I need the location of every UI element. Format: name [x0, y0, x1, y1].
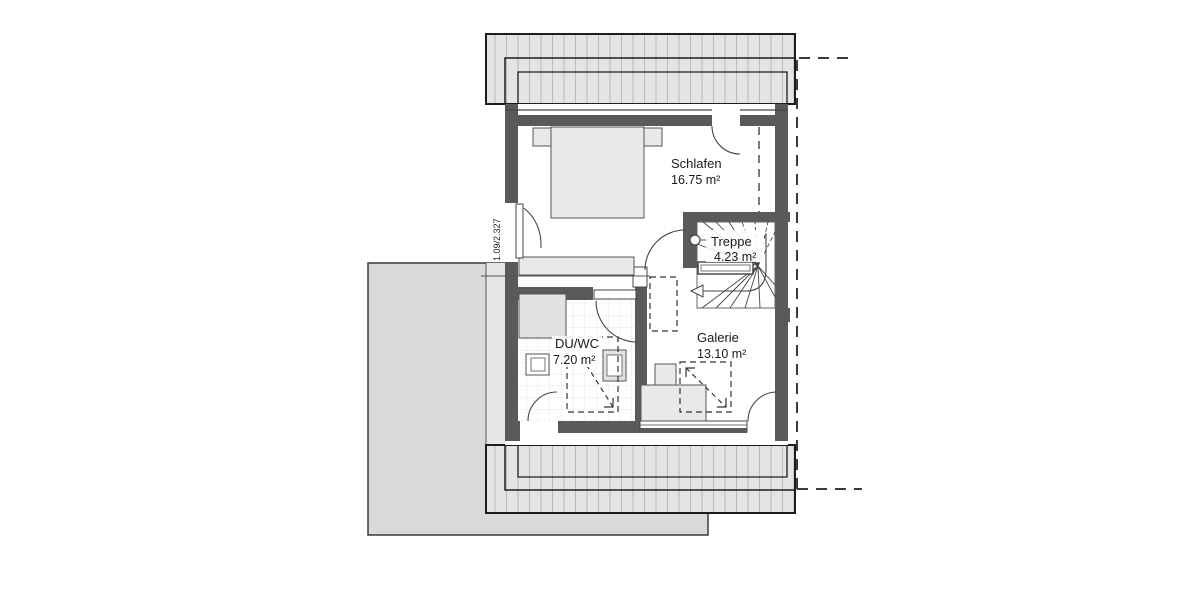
area-label-treppe: 4.23 m²: [714, 250, 756, 264]
sideboard: [519, 257, 634, 275]
window-bottom: [640, 421, 747, 433]
wall-stair-top: [683, 212, 790, 222]
bed: [551, 127, 644, 218]
room-label-duwc: DU/WC: [555, 336, 599, 351]
exterior-wall-bottom-mid: [558, 421, 640, 433]
duwc-door-lintel: [594, 290, 636, 299]
washbasin: [603, 350, 626, 381]
dimension-label: 1.09/2.327: [492, 218, 502, 261]
stair-newel-circle: [690, 235, 700, 245]
area-label-schlafen: 16.75 m²: [671, 173, 720, 187]
shower: [519, 294, 566, 338]
roof-overhang-bottom: [486, 445, 795, 513]
room-label-schlafen: Schlafen: [671, 156, 722, 171]
toilet: [526, 354, 549, 375]
area-label-duwc: 7.20 m²: [553, 353, 595, 367]
window-left-leaf: [516, 204, 523, 258]
floorplan-page: Schlafen 16.75 m² Treppe 4.23 m² DU/WC 7…: [0, 0, 1200, 600]
floorplan-svg: Schlafen 16.75 m² Treppe 4.23 m² DU/WC 7…: [0, 0, 1200, 600]
room-label-galerie: Galerie: [697, 330, 739, 345]
exterior-wall-bottom-corner-left: [505, 421, 520, 441]
nightstand-left: [533, 128, 551, 146]
desk-chair: [655, 364, 676, 385]
nightstand-right: [644, 128, 662, 146]
room-label-treppe: Treppe: [711, 234, 752, 249]
roof-overhang-top: [486, 34, 795, 104]
exterior-wall-top-right: [740, 115, 788, 126]
garage-roof-strip: [486, 263, 505, 445]
area-label-galerie: 13.10 m²: [697, 347, 746, 361]
desk: [641, 385, 706, 421]
exterior-wall-right: [775, 104, 788, 441]
exterior-wall-bottom-corner-right: [775, 421, 788, 441]
wall-stair-stub: [777, 308, 790, 322]
exterior-wall-top-left: [505, 115, 712, 126]
